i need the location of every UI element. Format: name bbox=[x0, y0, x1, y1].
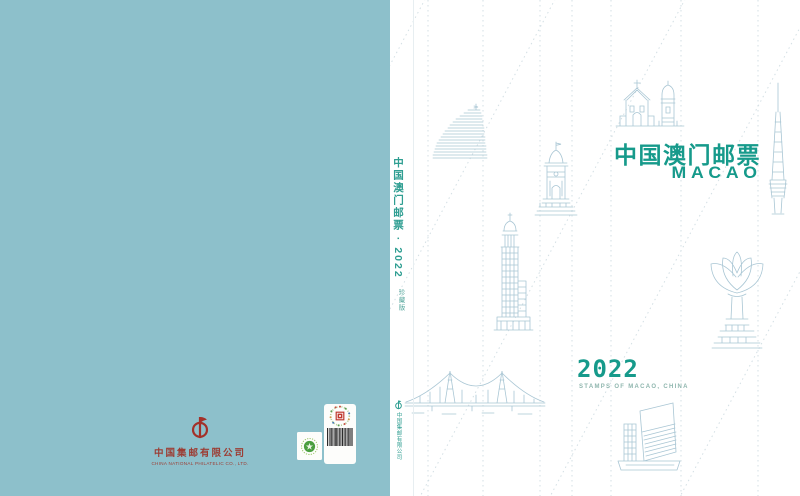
gate-tower-icon bbox=[535, 142, 577, 215]
china-philatelic-logo-icon bbox=[394, 399, 403, 411]
green-printing-mark bbox=[297, 432, 322, 460]
macao-cultural-centre-icon bbox=[618, 403, 680, 470]
publisher-name-en: CHINA NATIONAL PHILATELIC CO., LTD. bbox=[135, 461, 265, 466]
bank-of-china-tower-icon bbox=[494, 213, 533, 330]
dotted-guides bbox=[390, 0, 800, 496]
spine-publisher-name: 中国集邮有限公司 bbox=[395, 412, 403, 460]
back-cover: 中国集邮有限公司 CHINA NATIONAL PHILATELIC CO., … bbox=[0, 0, 390, 496]
cover-year: 2022 bbox=[577, 355, 639, 383]
cover-subtitle: STAMPS OF MACAO, CHINA bbox=[579, 384, 689, 390]
publisher-block: 中国集邮有限公司 CHINA NATIONAL PHILATELIC CO., … bbox=[135, 414, 265, 466]
spine-publisher-block: 中国集邮有限公司 bbox=[390, 399, 407, 460]
anti-counterfeit-emblem-icon bbox=[328, 404, 352, 428]
cover-artwork bbox=[390, 0, 800, 496]
spine-edition: 珍藏版 bbox=[395, 289, 405, 312]
macau-tower-icon bbox=[769, 83, 787, 214]
green-printing-icon bbox=[300, 436, 319, 457]
spine-title: 中国澳门邮票 · 2022 bbox=[391, 157, 406, 279]
grand-lisboa-hotel-icon bbox=[433, 104, 487, 158]
barcode-label bbox=[324, 404, 356, 464]
guia-chapel-and-lighthouse-icon bbox=[616, 80, 684, 126]
barcode-icon bbox=[327, 428, 353, 448]
lotus-square-sculpture-icon bbox=[711, 252, 763, 348]
publisher-name-cn: 中国集邮有限公司 bbox=[135, 445, 265, 459]
front-cover: 中国澳门邮票 · 2022 珍藏版 中国集邮有限公司 中国澳门邮票 MACAO … bbox=[390, 0, 800, 496]
spine-fold-line bbox=[413, 0, 414, 496]
cover-title-english: MACAO bbox=[672, 163, 762, 183]
china-philatelic-logo-icon bbox=[189, 414, 211, 442]
